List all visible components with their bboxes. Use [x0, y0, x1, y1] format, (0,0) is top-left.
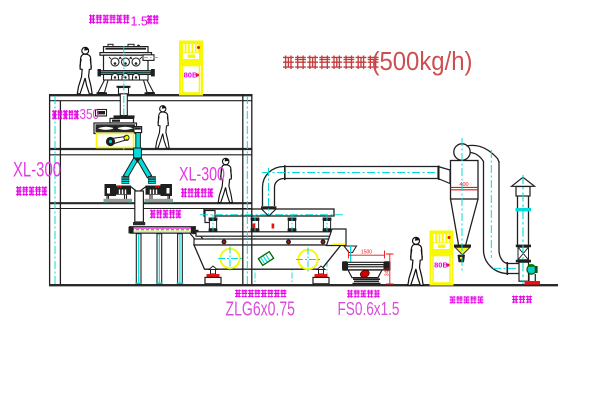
- svg-text:1.5: 1.5: [131, 15, 148, 29]
- svg-text:ZLG6x0.75: ZLG6x0.75: [226, 299, 296, 321]
- svg-text:FS0.6x1.5: FS0.6x1.5: [338, 298, 400, 319]
- svg-text:1500: 1500: [361, 249, 372, 255]
- svg-text:350: 350: [80, 107, 100, 123]
- svg-text:XL-300: XL-300: [179, 164, 225, 186]
- svg-text:XL-300: XL-300: [13, 159, 61, 182]
- svg-text:80B: 80B: [434, 261, 448, 270]
- svg-text:(500kg/h): (500kg/h): [372, 48, 473, 76]
- svg-text:345: 345: [384, 268, 390, 277]
- svg-text:80B: 80B: [184, 71, 198, 80]
- svg-text:400: 400: [459, 182, 468, 188]
